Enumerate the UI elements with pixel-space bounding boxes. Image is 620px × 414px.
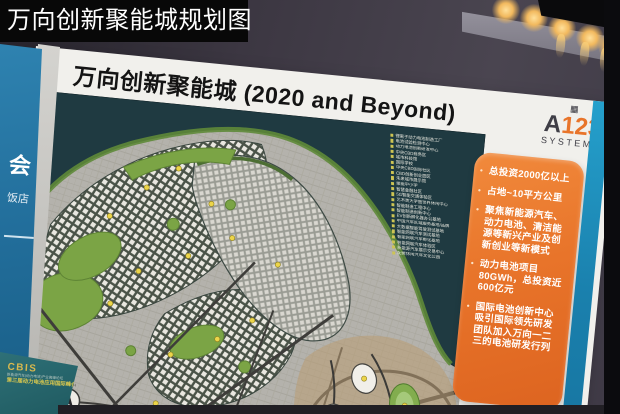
legend-bullet-icon xyxy=(391,176,394,180)
photo-caption: 万向创新聚能城规划图 xyxy=(0,0,248,42)
photo-scene: 万向创新聚能城 (2020 and Beyond) xyxy=(0,0,620,414)
legend-bullet-icon xyxy=(391,182,394,186)
right-black-edge xyxy=(604,0,620,414)
legend-bullet-icon xyxy=(392,240,395,244)
banner-divider xyxy=(4,235,36,239)
legend-bullet-icon xyxy=(391,187,394,191)
legend-bullet-icon xyxy=(392,235,395,239)
ceiling-light-icon xyxy=(492,0,520,24)
legend-bullet-icon xyxy=(392,230,395,234)
legend-bullet-icon xyxy=(390,144,393,148)
info-bullet-list: 总投资2000亿以上 占地~10平方公里 聚焦新能源汽车、动力电池、清洁能源等新… xyxy=(463,165,577,355)
info-bullet: 动力电池项目80GWh，总投资近600亿元 xyxy=(468,258,568,302)
info-bullet: 聚焦新能源汽车、动力电池、清洁能源等新兴产业及创新创业等新模式 xyxy=(472,204,573,259)
cbis-watermark-inner: CBIS 新能源汽车(动力电池)产业高峰论坛 第三届动力电池应用国际峰会 xyxy=(6,362,78,390)
legend-bullet-icon xyxy=(391,160,394,164)
legend-bullet-icon xyxy=(390,134,393,138)
legend-bullet-icon xyxy=(392,214,395,218)
info-panel: 总投资2000亿以上 占地~10平方公里 聚焦新能源汽车、动力电池、清洁能源等新… xyxy=(451,151,585,411)
legend-bullet-icon xyxy=(392,246,395,250)
display-board: 万向创新聚能城 (2020 and Beyond) xyxy=(0,46,617,414)
legend-bullet-icon xyxy=(391,166,394,170)
info-bullet: 总投资2000亿以上 xyxy=(479,165,577,186)
legend-bullet-icon xyxy=(391,150,394,154)
banner-char: 会 xyxy=(8,147,33,181)
bottom-dark-strip xyxy=(58,405,620,414)
legend-bullet-icon xyxy=(391,203,394,207)
legend-bullet-icon xyxy=(391,208,394,212)
info-bullet: 占地~10平方公里 xyxy=(477,184,575,205)
light-cone-icon xyxy=(555,34,566,59)
legend-bullet-icon xyxy=(392,224,395,228)
legend-bullet-icon xyxy=(392,219,395,223)
light-cone-icon xyxy=(579,42,590,67)
legend-bullet-icon xyxy=(391,192,394,196)
legend-bullet-icon xyxy=(391,155,394,159)
legend-bullet-icon xyxy=(392,251,395,255)
legend-bullet-icon xyxy=(391,198,394,202)
legend-bullet-icon xyxy=(391,171,394,175)
legend-bullet-icon xyxy=(390,139,393,143)
info-bullet: 国际电池创新中心吸引国际领先研发团队加入万向一二三的电池研发行列 xyxy=(463,300,564,355)
banner-char: 饭店 xyxy=(6,189,29,207)
